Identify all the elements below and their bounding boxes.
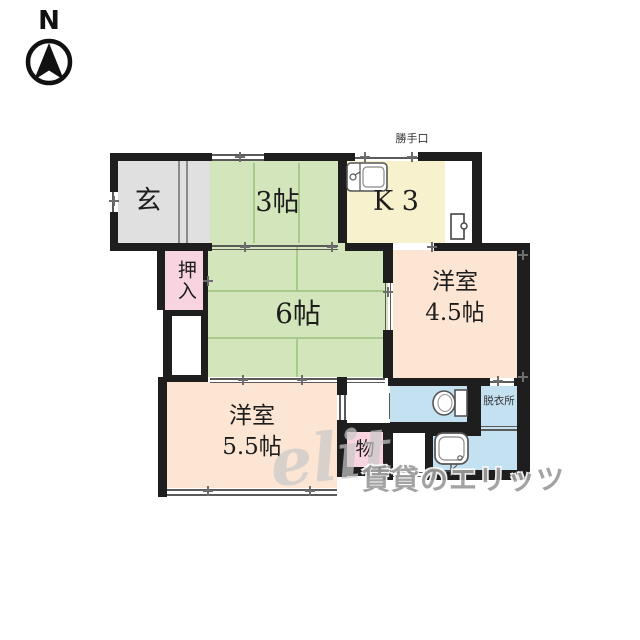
wall-segment — [517, 243, 530, 480]
dimension-tick — [493, 376, 503, 386]
tatami3-label: 3帖 — [210, 161, 345, 245]
wall-segment — [383, 330, 393, 378]
wall-segment — [163, 310, 172, 382]
toilet-door-line — [389, 393, 391, 419]
sliding-door-line — [212, 249, 338, 251]
bath-door-line — [481, 426, 517, 428]
genkan-label: 玄 — [118, 160, 178, 243]
dressing-label: 脱衣所 — [481, 393, 517, 409]
back-door-label: 勝手口 — [380, 131, 444, 147]
wall-segment — [158, 377, 167, 497]
north-label: N — [22, 6, 76, 36]
dimension-tick — [518, 250, 528, 260]
compass: N — [22, 6, 76, 92]
water-heater-icon — [450, 213, 468, 240]
tatami6-label: 6帖 — [208, 290, 388, 337]
north-arrow-icon — [25, 38, 73, 86]
bath-door-line — [481, 429, 517, 431]
wall-segment — [472, 152, 482, 251]
wall-segment — [337, 377, 347, 395]
oshiire-label: 押入 — [165, 252, 205, 310]
genkan-divider-line — [186, 161, 188, 243]
dimension-tick — [518, 372, 528, 382]
tatami-line — [296, 337, 298, 377]
genkan-divider-line — [178, 161, 180, 243]
toilet-icon — [431, 388, 469, 418]
tatami-line — [296, 245, 298, 290]
wall-segment — [467, 378, 481, 433]
wall-segment — [110, 153, 118, 192]
kitchen-label: K 3 — [347, 161, 445, 243]
wall-segment — [264, 153, 355, 161]
dimension-tick — [203, 486, 213, 496]
floor-plan: N — [0, 0, 640, 640]
wall-segment — [201, 310, 208, 377]
watermark-brand: 賃貸のエリッツ — [362, 458, 565, 498]
wall-segment — [383, 243, 393, 283]
western45-label: 洋室 4.5帖 — [393, 248, 517, 348]
western45-name: 洋室 — [432, 267, 478, 298]
sliding-door-line — [212, 245, 338, 247]
western45-size: 4.5帖 — [425, 298, 485, 329]
wall-segment — [157, 250, 165, 310]
